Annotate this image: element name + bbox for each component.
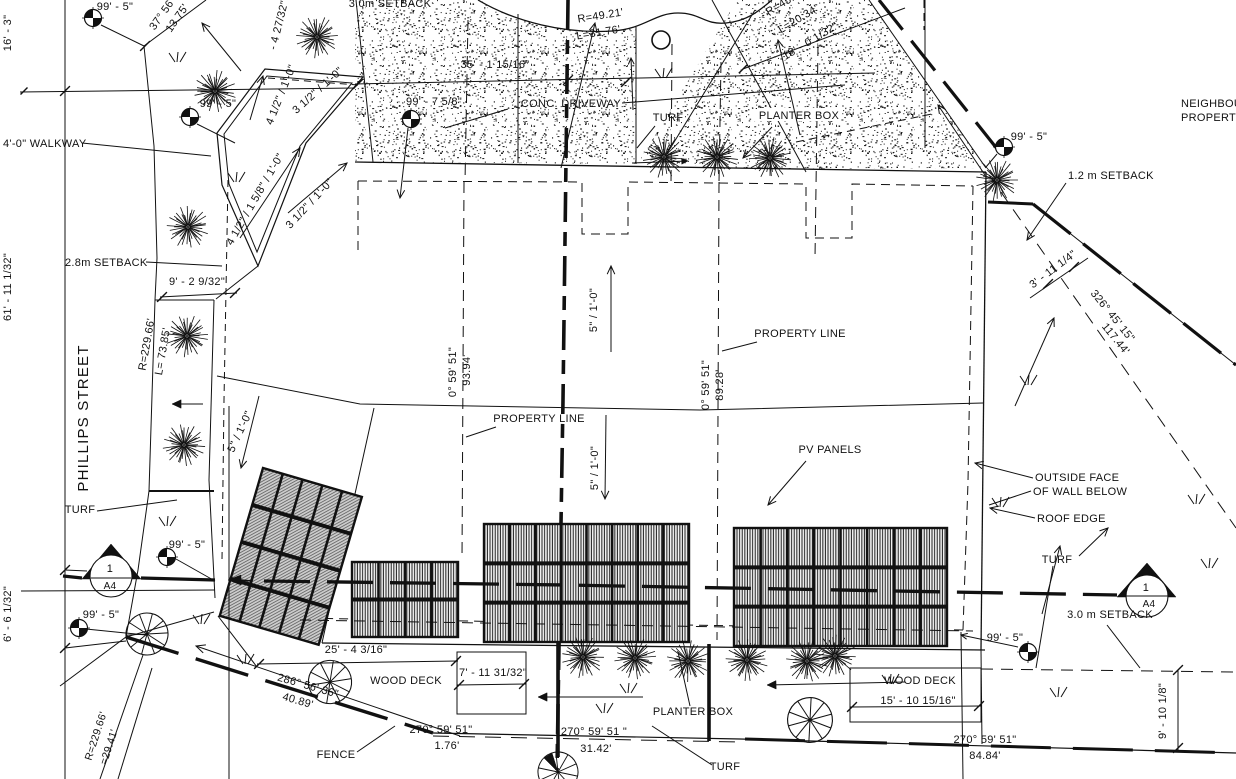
svg-text:270° 59' 51": 270° 59' 51" [954,734,1017,746]
svg-text:1: 1 [1143,582,1149,594]
svg-text:99' - 5": 99' - 5" [169,539,206,551]
svg-text:PROPERTY: PROPERTY [1181,112,1236,124]
svg-text:25' - 4 3/16": 25' - 4 3/16" [325,644,388,656]
svg-text:PROPERTY LINE: PROPERTY LINE [493,413,585,425]
svg-text:5" / 1'-0": 5" / 1'-0" [588,288,600,332]
svg-text:1.2 m SETBACK: 1.2 m SETBACK [1068,170,1154,182]
svg-text:35' - 1 15/16": 35' - 1 15/16" [461,59,530,71]
svg-text:270° 59' 51 ": 270° 59' 51 " [561,726,627,738]
svg-text:89.28': 89.28' [714,369,726,400]
svg-text:1.76': 1.76' [434,740,459,752]
svg-text:84.84': 84.84' [969,750,1000,762]
svg-text:PHILLIPS STREET: PHILLIPS STREET [75,344,92,491]
svg-text:93.94': 93.94' [461,354,473,385]
svg-text:15' - 10 15/16": 15' - 10 15/16" [880,695,955,707]
svg-text:0° 59' 51": 0° 59' 51" [700,360,712,410]
svg-text:TURF: TURF [653,112,684,124]
svg-text:99' - 5": 99' - 5" [83,609,120,621]
svg-text:PLANTER BOX: PLANTER BOX [653,706,734,718]
svg-text:99' - 5": 99' - 5" [97,1,134,13]
svg-text:270° 59' 51": 270° 59' 51" [410,724,473,736]
svg-text:16' - 3": 16' - 3" [2,15,14,52]
svg-text:99' - 5": 99' - 5" [987,632,1024,644]
svg-text:TURF: TURF [65,504,96,516]
svg-text:4'-0" WALKWAY: 4'-0" WALKWAY [3,138,87,150]
svg-text:99' - 7 5/8": 99' - 7 5/8" [406,96,462,108]
svg-text:WOOD DECK: WOOD DECK [370,675,442,687]
svg-text:OF WALL BELOW: OF WALL BELOW [1033,486,1127,498]
svg-text:PLANTER BOX: PLANTER BOX [759,110,840,122]
svg-text:61' - 11 1/32": 61' - 11 1/32" [2,253,14,321]
svg-text:NEIGHBOUR: NEIGHBOUR [1181,98,1236,110]
svg-text:7' - 11 31/32": 7' - 11 31/32" [459,667,527,679]
svg-text:99' - 5": 99' - 5" [200,98,237,110]
svg-text:31.42': 31.42' [580,743,611,755]
svg-text:9' - 2 9/32": 9' - 2 9/32" [169,276,225,288]
svg-text:1: 1 [107,563,113,575]
svg-text:CONC. DRIVEWAY: CONC. DRIVEWAY [521,98,622,110]
svg-text:ROOF EDGE: ROOF EDGE [1037,513,1106,525]
svg-text:TURF: TURF [710,761,741,773]
svg-text:OUTSIDE FACE: OUTSIDE FACE [1035,472,1119,484]
svg-text:2.8m SETBACK: 2.8m SETBACK [65,257,148,269]
svg-text:3.0m SETBACK: 3.0m SETBACK [349,0,432,10]
svg-text:6' - 6 1/32": 6' - 6 1/32" [2,586,14,642]
svg-text:0° 59' 51": 0° 59' 51" [447,347,459,397]
svg-text:FENCE: FENCE [317,749,356,761]
svg-text:9' - 10 1/8": 9' - 10 1/8" [1157,683,1169,739]
svg-text:99' - 5": 99' - 5" [1011,131,1048,143]
svg-text:PROPERTY LINE: PROPERTY LINE [754,328,846,340]
svg-text:3.0 m SETBACK: 3.0 m SETBACK [1067,609,1153,621]
svg-text:PV PANELS: PV PANELS [798,444,861,456]
svg-text:WOOD DECK: WOOD DECK [884,675,956,687]
svg-text:5" / 1'-0": 5" / 1'-0" [589,446,601,490]
